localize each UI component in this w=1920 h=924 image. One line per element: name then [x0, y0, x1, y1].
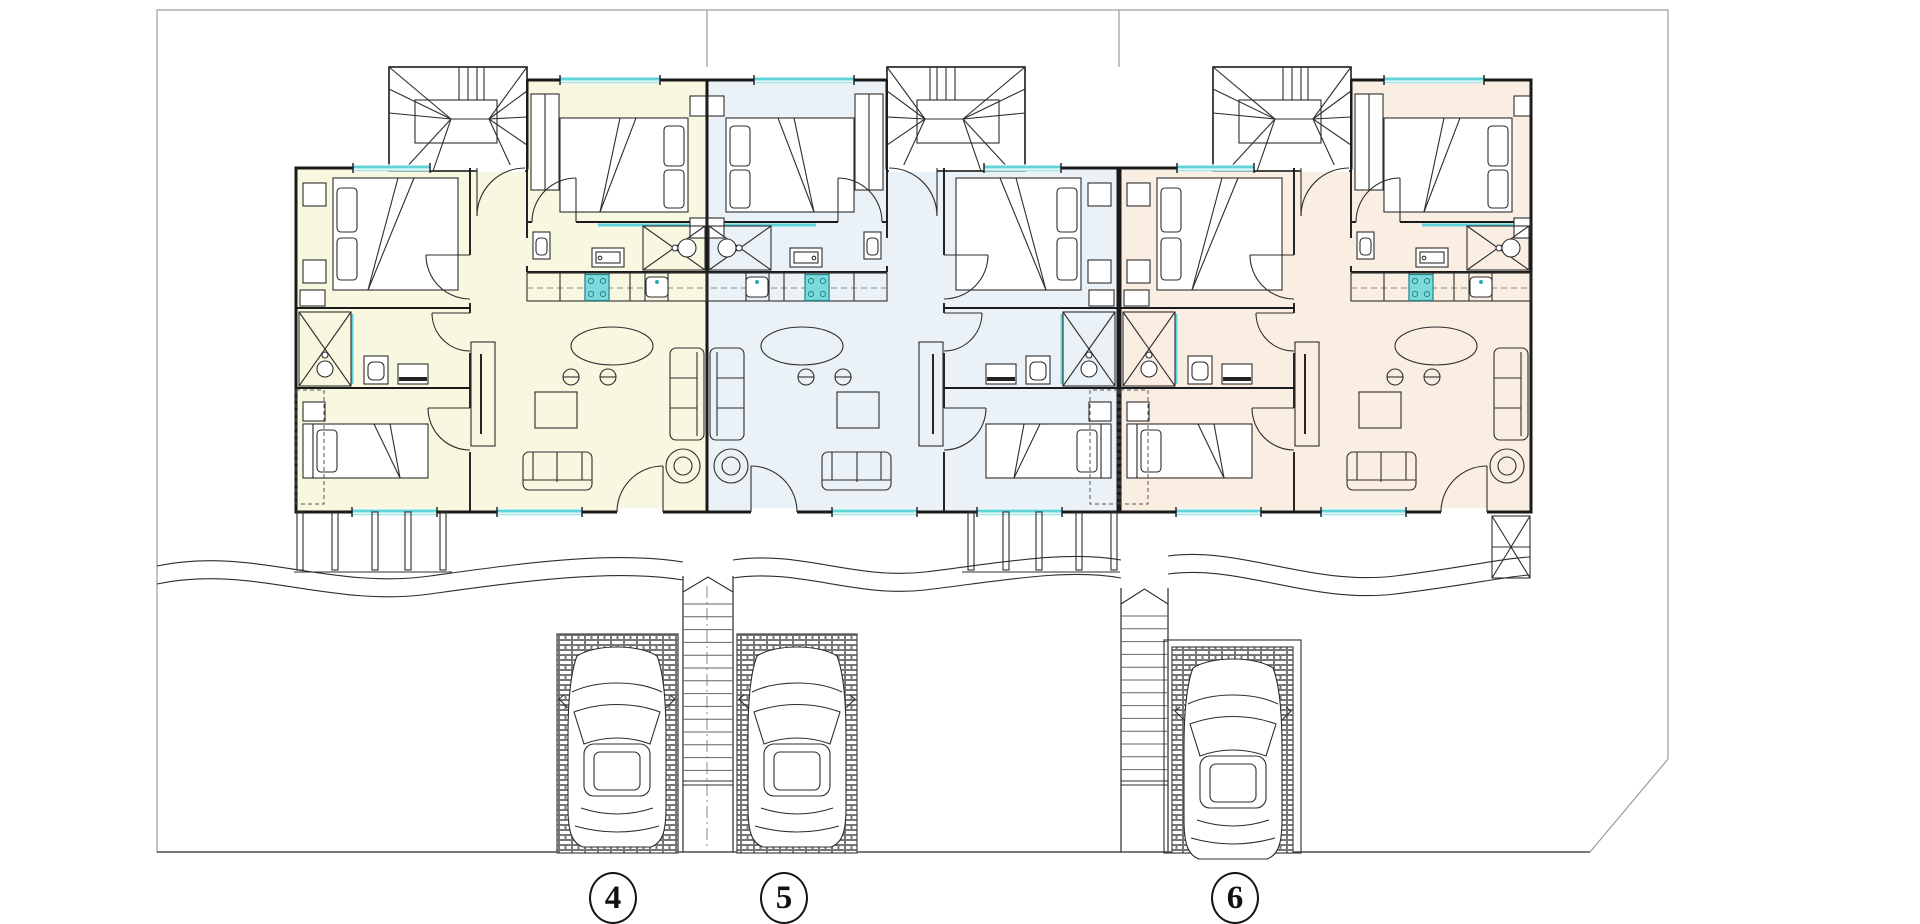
floor-plan-drawing [0, 0, 1920, 920]
stove-icon [585, 275, 609, 301]
outdoor-stair [683, 576, 733, 853]
stove-icon [805, 275, 829, 301]
unit-5 [707, 67, 1120, 572]
walkway [157, 554, 1530, 596]
unit-6 [1120, 67, 1531, 517]
car-top-view-icon [559, 647, 675, 847]
plot-number: 4 [605, 880, 622, 917]
porch-posts [962, 512, 1120, 572]
outdoor-stair [1121, 588, 1168, 853]
plot-label-6: 6 [1211, 872, 1259, 924]
winder-stair-icon [1213, 67, 1351, 171]
porch-pillar [1492, 516, 1530, 578]
plot-number: 6 [1227, 880, 1244, 917]
plot-label-4: 4 [589, 872, 637, 924]
unit-4 [294, 67, 707, 572]
plot-label-5: 5 [760, 872, 808, 924]
winder-stair-icon [887, 67, 1025, 171]
drawing-sheet: 4 5 6 [0, 0, 1920, 920]
winder-stair-icon [389, 67, 527, 171]
car-top-view-icon [739, 647, 855, 847]
stove-icon [1409, 275, 1433, 301]
car-top-view-icon [1175, 659, 1291, 859]
porch-posts [294, 512, 452, 572]
plot-number: 5 [776, 880, 793, 917]
